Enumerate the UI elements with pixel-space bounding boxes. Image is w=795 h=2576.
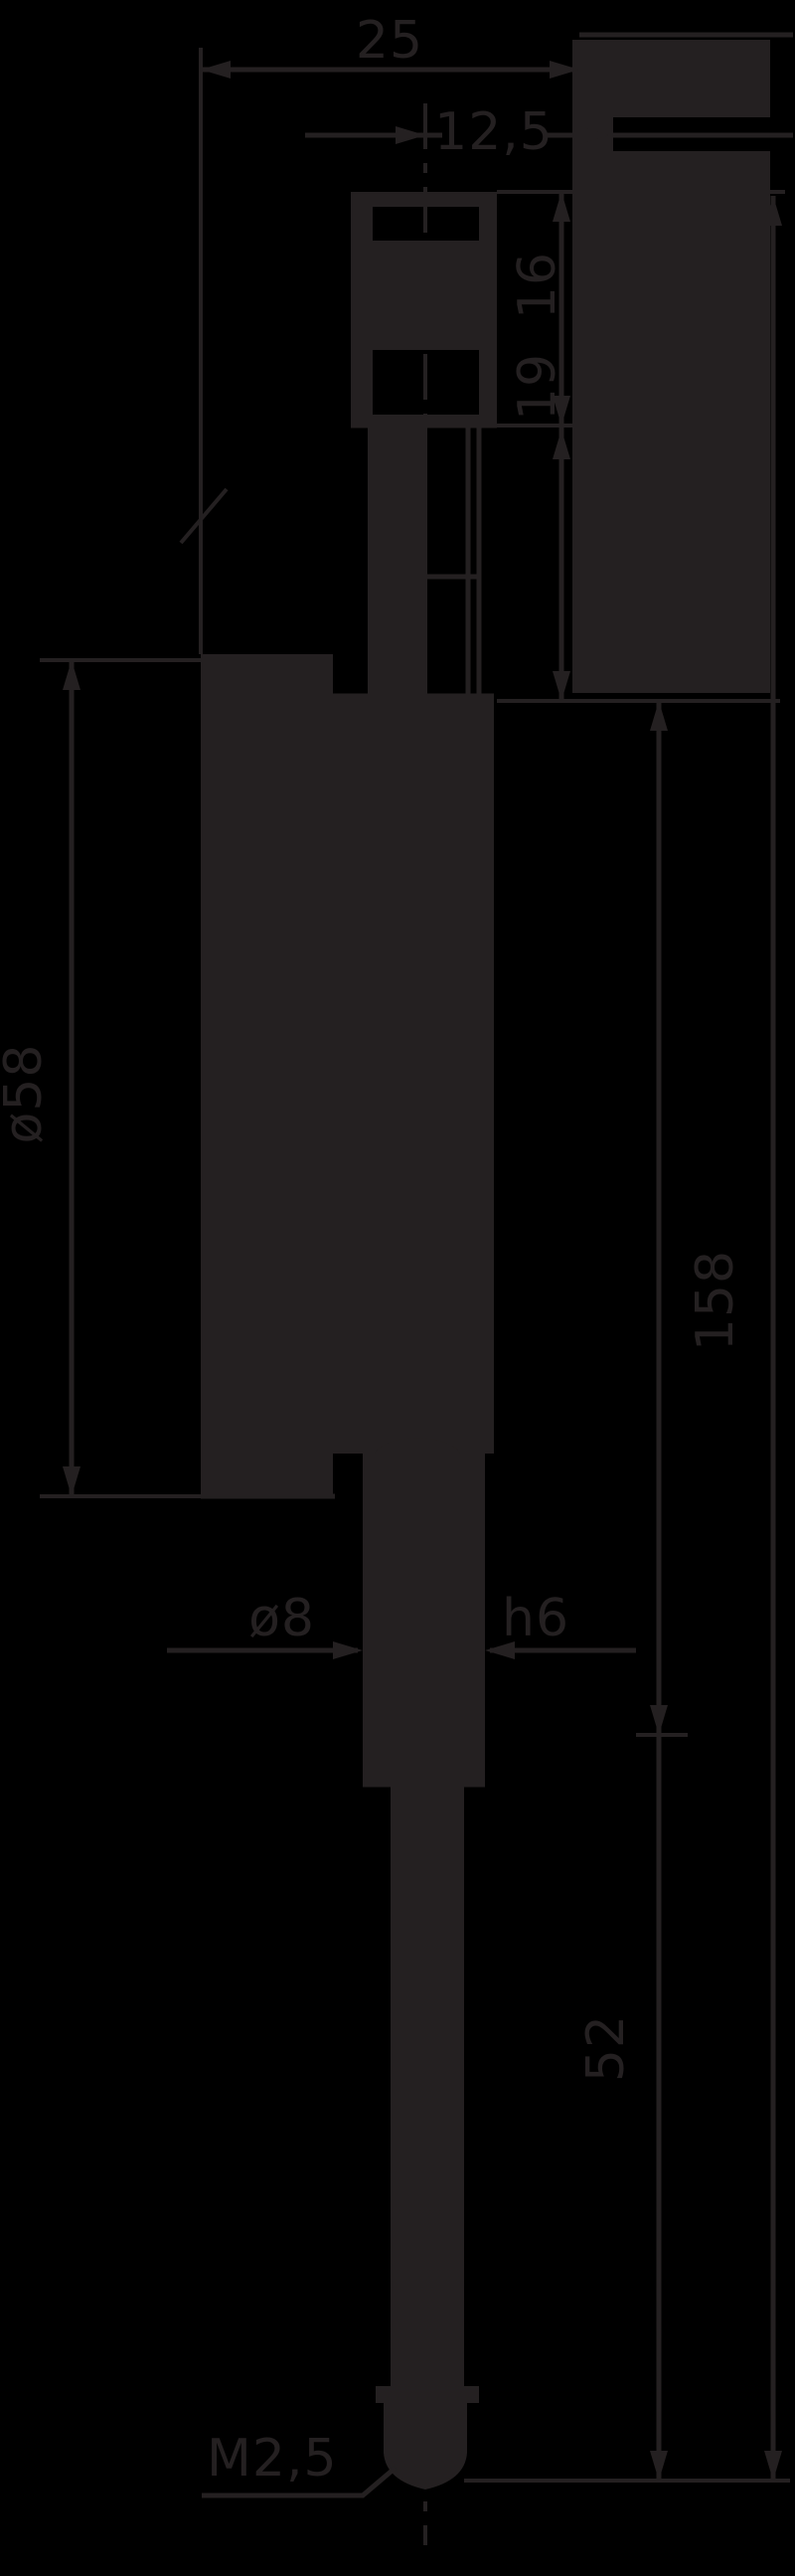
dim-text-neck-height: 19 [508,353,567,421]
dial-indicator-drawing: 25 12,5 16 19 ø58 ø8 h6 52 158 M2,5 [0,0,795,2576]
screenshot-root: 25 12,5 16 19 ø58 ø8 h6 52 158 M2,5 [0,0,795,2576]
dim-text-stem-tolerance: h6 [502,1589,569,1648]
dim-text-overall-length: 158 [686,1250,745,1351]
dim-text-lower-section: 52 [576,2014,636,2082]
dim-text-top-width: 25 [356,11,423,71]
dim-text-contact-thread: M2,5 [207,2429,338,2489]
bezel-disc-side [201,654,333,1496]
dim-text-center-offset: 12,5 [434,102,554,162]
dim-text-lug-height: 16 [508,252,567,319]
lug-pillar [368,426,427,696]
dim-text-bezel-diameter: ø58 [0,1044,54,1144]
dim-text-stem-diameter: ø8 [248,1589,315,1648]
case-body [333,696,494,1454]
case-clamp-detail [440,1106,474,1132]
